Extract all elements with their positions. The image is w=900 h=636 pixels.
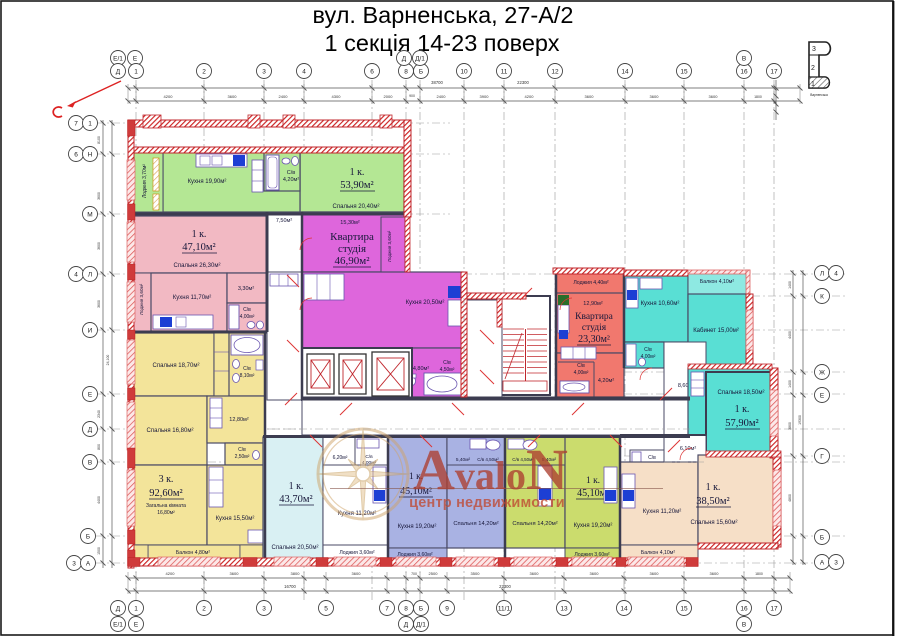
svg-text:38700: 38700 <box>431 80 443 85</box>
svg-text:В: В <box>88 459 92 466</box>
svg-text:3800: 3800 <box>291 571 301 576</box>
svg-text:С/в: С/в <box>243 366 251 372</box>
svg-text:С/в: С/в <box>648 455 656 461</box>
svg-text:14: 14 <box>621 68 629 75</box>
svg-text:2500: 2500 <box>429 571 439 576</box>
svg-text:Лоджия 4,40м²: Лоджия 4,40м² <box>573 280 608 286</box>
svg-text:10: 10 <box>460 68 468 75</box>
svg-text:3600: 3600 <box>530 571 540 576</box>
svg-text:1 к.: 1 к. <box>735 404 750 415</box>
svg-text:47,10м²: 47,10м² <box>182 242 215 253</box>
svg-text:Д: Д <box>116 605 121 612</box>
svg-text:57,90м²: 57,90м² <box>725 418 758 429</box>
svg-text:Спальня 14,20м²: Спальня 14,20м² <box>512 521 557 527</box>
svg-text:3600: 3600 <box>590 571 600 576</box>
svg-text:8,10м²: 8,10м² <box>240 373 255 379</box>
svg-text:Лоджия 3,70м²: Лоджия 3,70м² <box>142 164 148 198</box>
svg-text:Кухня 19,20м²: Кухня 19,20м² <box>398 524 437 530</box>
svg-text:3 к.: 3 к. <box>159 474 174 485</box>
svg-text:19300: 19300 <box>798 415 802 425</box>
svg-text:13: 13 <box>560 605 568 612</box>
svg-text:38,50м²: 38,50м² <box>696 496 729 507</box>
svg-text:16,80м²: 16,80м² <box>157 510 175 516</box>
svg-text:1500: 1500 <box>97 547 101 555</box>
svg-text:800: 800 <box>97 444 101 450</box>
svg-text:А: А <box>820 559 825 566</box>
svg-text:Кухня 15,50м²: Кухня 15,50м² <box>216 516 255 522</box>
svg-text:Балкон 4,10м²: Балкон 4,10м² <box>700 279 734 285</box>
svg-text:С/в: С/в <box>243 307 251 313</box>
svg-text:Квартира: Квартира <box>575 312 614 322</box>
svg-text:Г: Г <box>820 453 824 460</box>
svg-text:4200: 4200 <box>164 94 174 99</box>
svg-text:11: 11 <box>501 68 508 75</box>
svg-text:43,70м²: 43,70м² <box>279 494 312 505</box>
svg-text:Балкон 4,80м²: Балкон 4,80м² <box>176 550 210 556</box>
svg-text:46,90м²: 46,90м² <box>334 255 370 267</box>
svg-text:4,20м²: 4,20м² <box>283 177 299 183</box>
svg-text:Кухня 10,60м²: Кухня 10,60м² <box>641 301 680 307</box>
svg-text:3800: 3800 <box>788 422 792 430</box>
svg-text:Кухня 19,90м²: Кухня 19,90м² <box>188 179 227 185</box>
svg-text:14: 14 <box>620 605 628 612</box>
svg-text:1 к.: 1 к. <box>706 482 721 493</box>
svg-text:3600: 3600 <box>352 571 362 576</box>
svg-text:1 к.: 1 к. <box>350 167 365 178</box>
svg-text:4: 4 <box>74 271 78 278</box>
svg-text:Кабинет 15,00м²: Кабинет 15,00м² <box>693 328 739 334</box>
svg-text:Спальня 15,60м²: Спальня 15,60м² <box>691 520 738 526</box>
svg-text:Спальня 26,30м²: Спальня 26,30м² <box>174 263 221 269</box>
svg-text:3600: 3600 <box>585 94 595 99</box>
svg-text:6: 6 <box>74 151 78 158</box>
svg-text:16: 16 <box>740 68 748 75</box>
svg-text:Спальня 20,50м²: Спальня 20,50м² <box>272 545 319 551</box>
svg-text:2340: 2340 <box>97 410 101 418</box>
svg-text:С/в: С/в <box>238 447 246 453</box>
svg-text:5: 5 <box>324 605 328 612</box>
svg-text:Б: Б <box>86 533 90 540</box>
svg-text:7: 7 <box>74 120 78 127</box>
svg-text:17: 17 <box>770 68 778 75</box>
svg-text:В: В <box>742 55 746 62</box>
svg-text:2,50м²: 2,50м² <box>235 454 250 460</box>
svg-text:4: 4 <box>302 68 306 75</box>
svg-text:6: 6 <box>370 68 374 75</box>
svg-text:53,90м²: 53,90м² <box>340 180 373 191</box>
svg-text:Е/1: Е/1 <box>113 55 123 62</box>
svg-text:3: 3 <box>834 559 838 566</box>
svg-text:2: 2 <box>202 605 206 612</box>
svg-text:Д: Д <box>88 426 93 433</box>
svg-text:Спальня 16,80м²: Спальня 16,80м² <box>147 428 194 434</box>
svg-text:3: 3 <box>812 46 816 53</box>
svg-text:12: 12 <box>551 68 559 75</box>
svg-text:С/в: С/в <box>644 347 652 353</box>
svg-text:3: 3 <box>72 560 76 567</box>
svg-text:4,00м²: 4,00м² <box>240 314 255 320</box>
svg-text:22300: 22300 <box>499 584 511 589</box>
svg-text:3600: 3600 <box>230 571 240 576</box>
svg-text:М: М <box>87 211 92 218</box>
svg-text:вул. Варненська, 27-А/2: вул. Варненська, 27-А/2 <box>313 2 574 28</box>
svg-text:Е/1: Е/1 <box>113 621 123 628</box>
svg-text:Балкон 4,10м²: Балкон 4,10м² <box>641 550 675 556</box>
svg-text:Б: Б <box>820 534 824 541</box>
svg-text:7,50м²: 7,50м² <box>276 218 292 224</box>
svg-text:Спальня 14,20м²: Спальня 14,20м² <box>453 521 498 527</box>
svg-text:700: 700 <box>411 572 417 576</box>
svg-text:4300: 4300 <box>332 94 342 99</box>
svg-text:4,50м²: 4,50м² <box>440 367 455 373</box>
svg-text:4400: 4400 <box>788 331 792 339</box>
svg-text:В: В <box>742 621 746 628</box>
svg-text:7: 7 <box>385 605 389 612</box>
svg-text:11/1: 11/1 <box>498 605 511 612</box>
svg-text:8: 8 <box>404 605 408 612</box>
svg-text:15: 15 <box>680 605 688 612</box>
svg-text:1800: 1800 <box>755 572 763 576</box>
svg-text:4800: 4800 <box>788 494 792 502</box>
svg-text:Кухня 11,70м²: Кухня 11,70м² <box>173 295 211 301</box>
svg-text:Варненська: Варненська <box>810 93 828 97</box>
svg-text:Н: Н <box>88 151 93 158</box>
svg-text:4200: 4200 <box>525 94 535 99</box>
svg-text:Кухня 19,20м²: Кухня 19,20м² <box>574 523 613 529</box>
svg-text:С/в: С/в <box>365 454 373 460</box>
svg-text:1 к.: 1 к. <box>586 476 600 486</box>
svg-text:2400: 2400 <box>437 94 447 99</box>
svg-text:Е: Е <box>133 55 138 62</box>
svg-text:Лоджия 3,60м²: Лоджия 3,60м² <box>339 550 374 556</box>
svg-text:1 к.: 1 к. <box>289 481 304 492</box>
svg-text:3600: 3600 <box>650 94 660 99</box>
svg-text:2400: 2400 <box>279 94 289 99</box>
svg-text:3: 3 <box>262 605 266 612</box>
svg-text:Спальня 20,40м²: Спальня 20,40м² <box>333 204 380 210</box>
svg-text:Ж: Ж <box>819 369 825 376</box>
svg-text:студія: студія <box>582 323 607 333</box>
svg-text:4,80м²: 4,80м² <box>413 366 429 372</box>
svg-text:Л: Л <box>88 271 92 278</box>
svg-text:4400: 4400 <box>97 496 101 504</box>
svg-text:1400: 1400 <box>788 281 792 289</box>
svg-text:3600: 3600 <box>97 300 101 308</box>
svg-text:3: 3 <box>262 68 266 75</box>
svg-text:23,30м²: 23,30м² <box>578 334 610 345</box>
svg-text:6,10м²: 6,10м² <box>680 446 696 452</box>
svg-text:1800: 1800 <box>754 95 762 99</box>
svg-text:2: 2 <box>202 68 206 75</box>
svg-text:3600: 3600 <box>97 192 101 200</box>
svg-text:12,80м²: 12,80м² <box>229 417 249 423</box>
svg-text:3,30м²: 3,30м² <box>238 286 254 292</box>
svg-text:Д/1: Д/1 <box>415 55 425 62</box>
svg-text:Б: Б <box>419 68 423 75</box>
svg-text:С/в: С/в <box>577 363 585 369</box>
svg-text:Л: Л <box>820 270 824 277</box>
svg-text:12,90м²: 12,90м² <box>583 301 603 307</box>
svg-text:3600: 3600 <box>710 571 720 576</box>
svg-text:1: 1 <box>88 120 92 127</box>
svg-text:8100: 8100 <box>97 136 101 144</box>
svg-text:24,100: 24,100 <box>106 355 110 366</box>
svg-text:15,30м²: 15,30м² <box>340 220 360 226</box>
svg-text:15: 15 <box>680 68 688 75</box>
svg-text:17: 17 <box>770 605 778 612</box>
svg-text:1400: 1400 <box>788 380 792 388</box>
svg-text:Е: Е <box>88 391 93 398</box>
svg-text:16: 16 <box>740 605 748 612</box>
svg-text:3900: 3900 <box>480 94 490 99</box>
svg-text:центр недвижимости: центр недвижимости <box>409 495 565 511</box>
svg-text:1 к.: 1 к. <box>192 229 207 240</box>
svg-text:К: К <box>820 293 824 300</box>
svg-text:6,20м²: 6,20м² <box>333 455 348 461</box>
svg-text:4,00м²: 4,00м² <box>574 370 589 376</box>
svg-text:3500: 3500 <box>471 571 481 576</box>
svg-text:3600: 3600 <box>228 94 238 99</box>
svg-text:Е: Е <box>134 621 139 628</box>
svg-text:студія: студія <box>338 243 366 255</box>
svg-text:А: А <box>86 560 91 567</box>
svg-text:Д: Д <box>116 68 121 75</box>
svg-text:Лоджия 3,60м²: Лоджия 3,60м² <box>139 283 144 315</box>
svg-text:Квартира: Квартира <box>330 231 374 243</box>
svg-text:3600: 3600 <box>709 94 719 99</box>
svg-text:Д: Д <box>404 621 409 628</box>
svg-text:92,60м²: 92,60м² <box>149 488 182 499</box>
svg-text:Спальня 18,70м²: Спальня 18,70м² <box>153 363 200 369</box>
svg-text:С/в: С/в <box>443 360 451 366</box>
svg-text:1: 1 <box>134 605 138 612</box>
svg-text:Д: Д <box>402 55 407 62</box>
svg-text:Лоджия 3,60м²: Лоджия 3,60м² <box>387 230 392 262</box>
svg-text:3600: 3600 <box>650 571 660 576</box>
svg-text:Кухня 11,20м²: Кухня 11,20м² <box>643 509 681 515</box>
svg-text:4: 4 <box>834 270 838 277</box>
svg-text:Е: Е <box>820 392 825 399</box>
svg-text:Кухня 20,50м²: Кухня 20,50м² <box>406 300 445 306</box>
svg-text:1: 1 <box>811 81 815 88</box>
svg-text:Д/1: Д/1 <box>416 621 426 628</box>
svg-text:2: 2 <box>811 65 815 72</box>
svg-text:8: 8 <box>404 68 408 75</box>
svg-text:Б: Б <box>419 605 423 612</box>
svg-text:С/в: С/в <box>287 170 296 176</box>
svg-text:4200: 4200 <box>166 571 176 576</box>
svg-text:1 секція 14-23 поверх: 1 секція 14-23 поверх <box>325 30 560 56</box>
svg-text:9: 9 <box>445 605 449 612</box>
svg-text:И: И <box>88 327 93 334</box>
svg-text:4,20м²: 4,20м² <box>598 378 614 384</box>
svg-text:16700: 16700 <box>284 584 296 589</box>
svg-text:1: 1 <box>134 68 138 75</box>
svg-text:22300: 22300 <box>517 80 529 85</box>
svg-text:3600: 3600 <box>97 242 101 250</box>
svg-text:Спальня 18,50м²: Спальня 18,50м² <box>718 390 765 396</box>
svg-text:900: 900 <box>409 94 415 98</box>
svg-text:2000: 2000 <box>384 94 394 99</box>
svg-text:Загальна кімната: Загальна кімната <box>146 503 186 509</box>
